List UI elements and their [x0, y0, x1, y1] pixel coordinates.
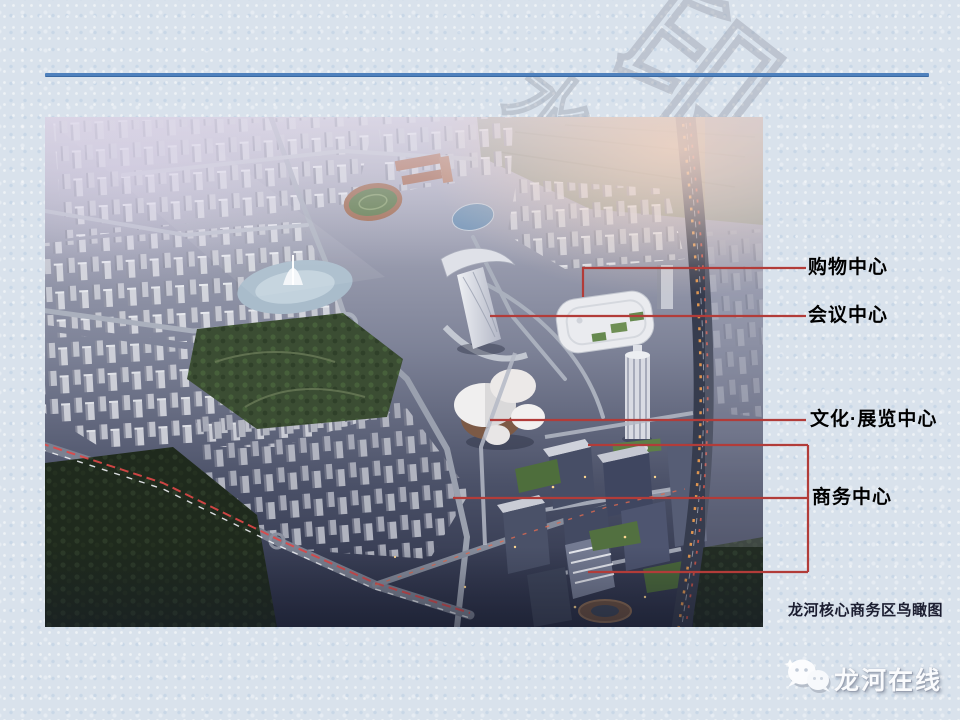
aerial-photo [45, 117, 763, 627]
callout-shopping-center: 购物中心 [808, 257, 888, 279]
callout-conference-center: 会议中心 [808, 305, 888, 327]
photo-caption: 龙河核心商务区鸟瞰图 [788, 599, 943, 620]
logo-label: 龙河在线 [834, 661, 942, 697]
aerial-image [45, 117, 763, 627]
slide-canvas: 印 水 [0, 0, 960, 720]
chat-bubbles-icon [782, 653, 834, 701]
divider-rule [45, 73, 929, 77]
site-logo: 龙河在线 [782, 653, 952, 705]
callout-business-center: 商务中心 [812, 487, 892, 509]
callout-culture-exhibition-center: 文化·展览中心 [810, 409, 937, 431]
